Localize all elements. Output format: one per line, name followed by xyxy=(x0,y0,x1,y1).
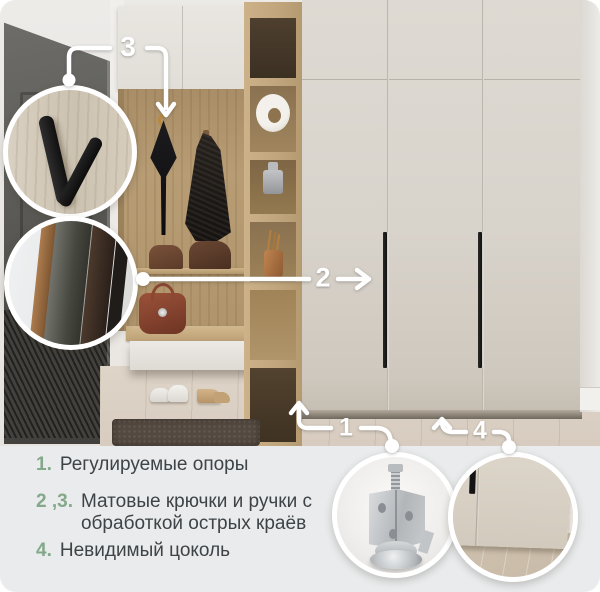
reed-diffuser xyxy=(264,250,283,278)
legend-text: Матовые крючки и ручки с обработкой остр… xyxy=(81,491,313,535)
leveling-foot-closeup-inset xyxy=(332,452,458,578)
legend-item-1: 1. Регулируемые опоры xyxy=(36,454,248,476)
invisible-plinth-closeup-inset xyxy=(448,452,578,582)
decor-figurine xyxy=(263,170,283,194)
legend-number: 1. xyxy=(36,454,52,476)
right-wall xyxy=(580,0,600,412)
bag-charm xyxy=(158,308,167,317)
bracket-fold xyxy=(395,490,397,548)
edge-finish-closeup-inset xyxy=(4,216,138,350)
hook-closeup-inset xyxy=(3,85,137,219)
handle-tip xyxy=(469,468,476,494)
legend-text: Невидимый цоколь xyxy=(60,540,230,562)
legend-item-2-3: 2 ,3. Матовые крючки и ручки с обработко… xyxy=(36,491,313,535)
legend-number: 2 ,3. xyxy=(36,491,73,513)
wardrobe-doors xyxy=(302,0,582,418)
foot-base xyxy=(370,550,422,569)
sneakers xyxy=(168,385,188,402)
sneakers xyxy=(150,388,170,402)
cabinet-door-gap xyxy=(182,6,183,89)
product-feature-card: 1. Регулируемые опоры 2 ,3. Матовые крюч… xyxy=(0,0,600,592)
boots xyxy=(189,241,231,269)
bracket-hole xyxy=(405,511,413,521)
bracket-hole xyxy=(378,503,386,513)
metal-bracket xyxy=(369,489,425,549)
shelf-cell xyxy=(250,290,296,360)
legend-number: 4. xyxy=(36,540,52,562)
shelf-cell xyxy=(250,18,296,78)
doormat xyxy=(112,419,260,446)
door-gap-vertical xyxy=(387,0,389,418)
decor-vase-hole xyxy=(268,108,281,123)
boots xyxy=(149,245,183,269)
legend-text: Регулируемые опоры xyxy=(60,454,249,476)
door-gap-vertical xyxy=(482,0,484,418)
upper-cabinet xyxy=(118,6,246,89)
rod-cap xyxy=(388,464,403,472)
door-gap-horizontal xyxy=(302,79,582,81)
right-baseboard xyxy=(580,388,600,410)
wardrobe-handle xyxy=(478,232,482,368)
bracket-hole xyxy=(389,529,397,539)
heeled-shoes xyxy=(214,392,230,403)
open-shelf-column xyxy=(244,2,302,446)
wardrobe-handle xyxy=(383,232,387,368)
legend-item-4: 4. Невидимый цоколь xyxy=(36,540,230,562)
door-gap xyxy=(475,452,480,546)
recessed-plinth xyxy=(302,410,582,419)
door-bottom-closeup xyxy=(448,452,571,549)
